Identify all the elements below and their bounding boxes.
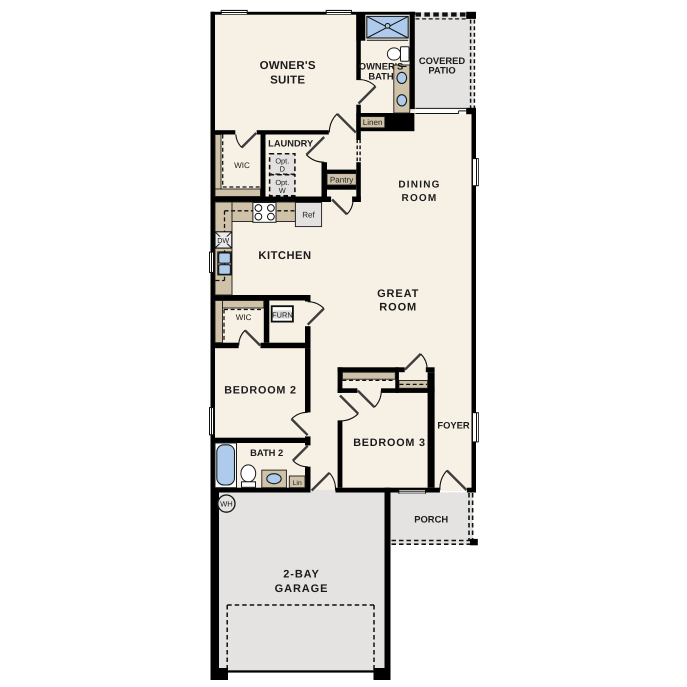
svg-text:PORCH: PORCH — [414, 513, 448, 524]
svg-text:FOYER: FOYER — [437, 420, 470, 431]
svg-text:WH: WH — [220, 499, 233, 508]
svg-text:LAUNDRY: LAUNDRY — [268, 139, 314, 149]
svg-text:WIC: WIC — [236, 313, 252, 322]
svg-text:KITCHEN: KITCHEN — [258, 250, 311, 262]
svg-text:BEDROOM 2: BEDROOM 2 — [224, 384, 297, 396]
svg-text:Pantry: Pantry — [330, 176, 354, 185]
svg-text:ROOM: ROOM — [402, 193, 438, 204]
svg-text:D: D — [280, 164, 285, 173]
svg-text:BATH 2: BATH 2 — [250, 447, 283, 458]
svg-text:Lin: Lin — [293, 480, 302, 487]
svg-text:GARAGE: GARAGE — [275, 583, 329, 595]
svg-text:Linen: Linen — [363, 118, 383, 127]
svg-text:BATH: BATH — [368, 71, 394, 82]
svg-text:ROOM: ROOM — [379, 302, 417, 314]
svg-text:WIC: WIC — [234, 161, 250, 170]
svg-text:OWNER'S: OWNER'S — [260, 60, 316, 72]
svg-text:GREAT: GREAT — [377, 288, 419, 300]
svg-text:PATIO: PATIO — [428, 65, 455, 76]
svg-text:2-BAY: 2-BAY — [283, 568, 320, 580]
svg-text:FURN: FURN — [272, 311, 293, 320]
svg-text:DW: DW — [217, 236, 229, 245]
svg-text:DINING: DINING — [398, 180, 440, 191]
svg-text:BEDROOM 3: BEDROOM 3 — [353, 437, 426, 449]
svg-text:Ref: Ref — [302, 211, 315, 220]
svg-text:W: W — [279, 186, 286, 195]
svg-text:SUITE: SUITE — [270, 75, 305, 87]
